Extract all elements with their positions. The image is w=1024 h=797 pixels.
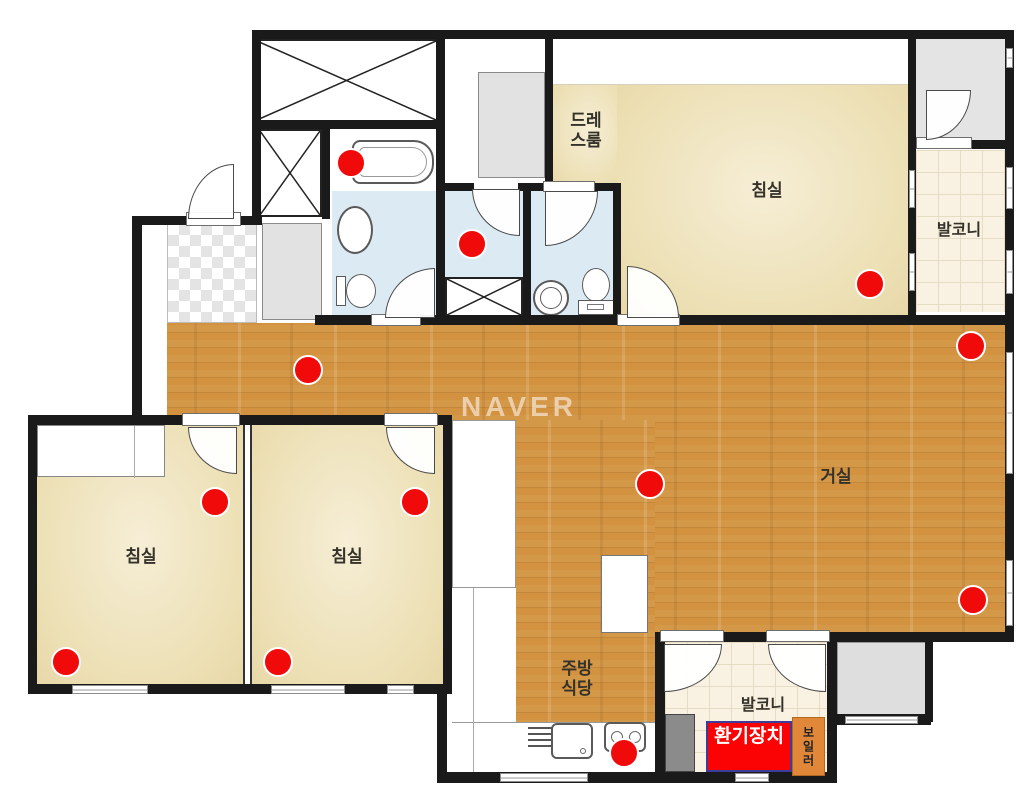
wall — [437, 772, 837, 783]
label-dressing-room: 드레스룸 — [570, 111, 601, 151]
door-sill — [660, 630, 724, 642]
wall — [252, 30, 261, 220]
red-dot-marker — [51, 647, 81, 677]
wall — [252, 30, 1014, 39]
counter-edge-line — [473, 588, 474, 772]
entry-closet — [262, 223, 322, 320]
label-balcony-bottom: 발코니 — [741, 696, 785, 716]
wall — [252, 120, 444, 129]
floor-plan: 드레스룸 침실 발코니 거실 침실 침실 주방식당 발코니 환기장치 보일러 N… — [0, 0, 1024, 797]
red-dot-marker — [609, 738, 639, 768]
boiler-box: 보일러 — [792, 717, 825, 776]
shaft-x-large — [255, 39, 438, 122]
naver-watermark: NAVER — [461, 391, 577, 423]
label-bedroom-middle: 침실 — [331, 547, 362, 567]
window — [1006, 167, 1013, 209]
door-swing-arc — [188, 164, 234, 219]
window — [271, 685, 345, 694]
window — [1006, 48, 1013, 68]
label-bedroom-master: 침실 — [751, 181, 782, 201]
door-sill — [766, 630, 830, 642]
toilet-second-icon — [578, 268, 616, 316]
door-sill — [182, 413, 240, 426]
aircon-platform — [837, 642, 930, 715]
label-balcony-topright: 발코니 — [937, 221, 981, 241]
bedroom-divider-wall — [243, 418, 252, 685]
window — [387, 685, 414, 694]
wall — [132, 216, 142, 425]
wall — [1005, 30, 1014, 642]
red-dot-marker — [855, 269, 885, 299]
window — [500, 773, 588, 782]
red-dot-marker — [635, 469, 665, 499]
kitchen-cabinet-run — [452, 420, 516, 588]
red-dot-marker — [263, 647, 293, 677]
window — [735, 773, 769, 782]
wall — [322, 120, 330, 219]
red-dot-marker — [956, 331, 986, 361]
red-dot-marker — [400, 487, 430, 517]
label-living-room: 거실 — [820, 467, 851, 487]
shaft-x-bath — [445, 277, 523, 317]
wall — [239, 415, 386, 425]
window — [1006, 352, 1013, 474]
vent-lines-icon — [528, 727, 553, 749]
washing-machine-icon — [533, 280, 569, 316]
window — [909, 170, 915, 208]
red-dot-marker — [200, 487, 230, 517]
kitchen-sink-icon — [551, 723, 593, 759]
toilet-icon — [336, 272, 378, 310]
wall — [28, 415, 184, 425]
red-dot-marker — [336, 148, 366, 178]
window — [1006, 250, 1013, 294]
red-dot-marker — [958, 585, 988, 615]
wall — [613, 183, 621, 325]
sink-icon — [337, 206, 373, 254]
window — [909, 253, 915, 291]
wardrobe-strip — [553, 38, 908, 85]
wall — [545, 30, 553, 192]
entry-tile-floor — [167, 223, 257, 323]
door-sill — [916, 137, 972, 149]
wall — [827, 632, 837, 783]
wall — [419, 315, 622, 325]
wall — [523, 183, 531, 325]
bedroom-closet — [37, 425, 165, 477]
wall — [678, 315, 1014, 325]
wall — [436, 30, 445, 319]
window — [845, 716, 918, 724]
duct-box — [665, 714, 695, 772]
storage-cabinet — [478, 72, 545, 178]
shaft-x-small — [258, 129, 322, 217]
wall — [443, 415, 452, 691]
wall — [315, 315, 373, 325]
kitchen-island — [601, 555, 648, 633]
red-dot-marker — [457, 229, 487, 259]
window — [72, 685, 148, 694]
label-kitchen: 주방식당 — [561, 659, 592, 699]
entry-side-strip — [142, 223, 167, 418]
wall — [437, 684, 447, 783]
ventilation-unit-box: 환기장치 — [706, 721, 792, 772]
label-bedroom-left: 침실 — [125, 547, 156, 567]
wall — [925, 642, 933, 722]
red-dot-marker — [293, 355, 323, 385]
window — [1006, 560, 1013, 626]
wall — [28, 415, 37, 694]
door-sill — [384, 413, 438, 426]
